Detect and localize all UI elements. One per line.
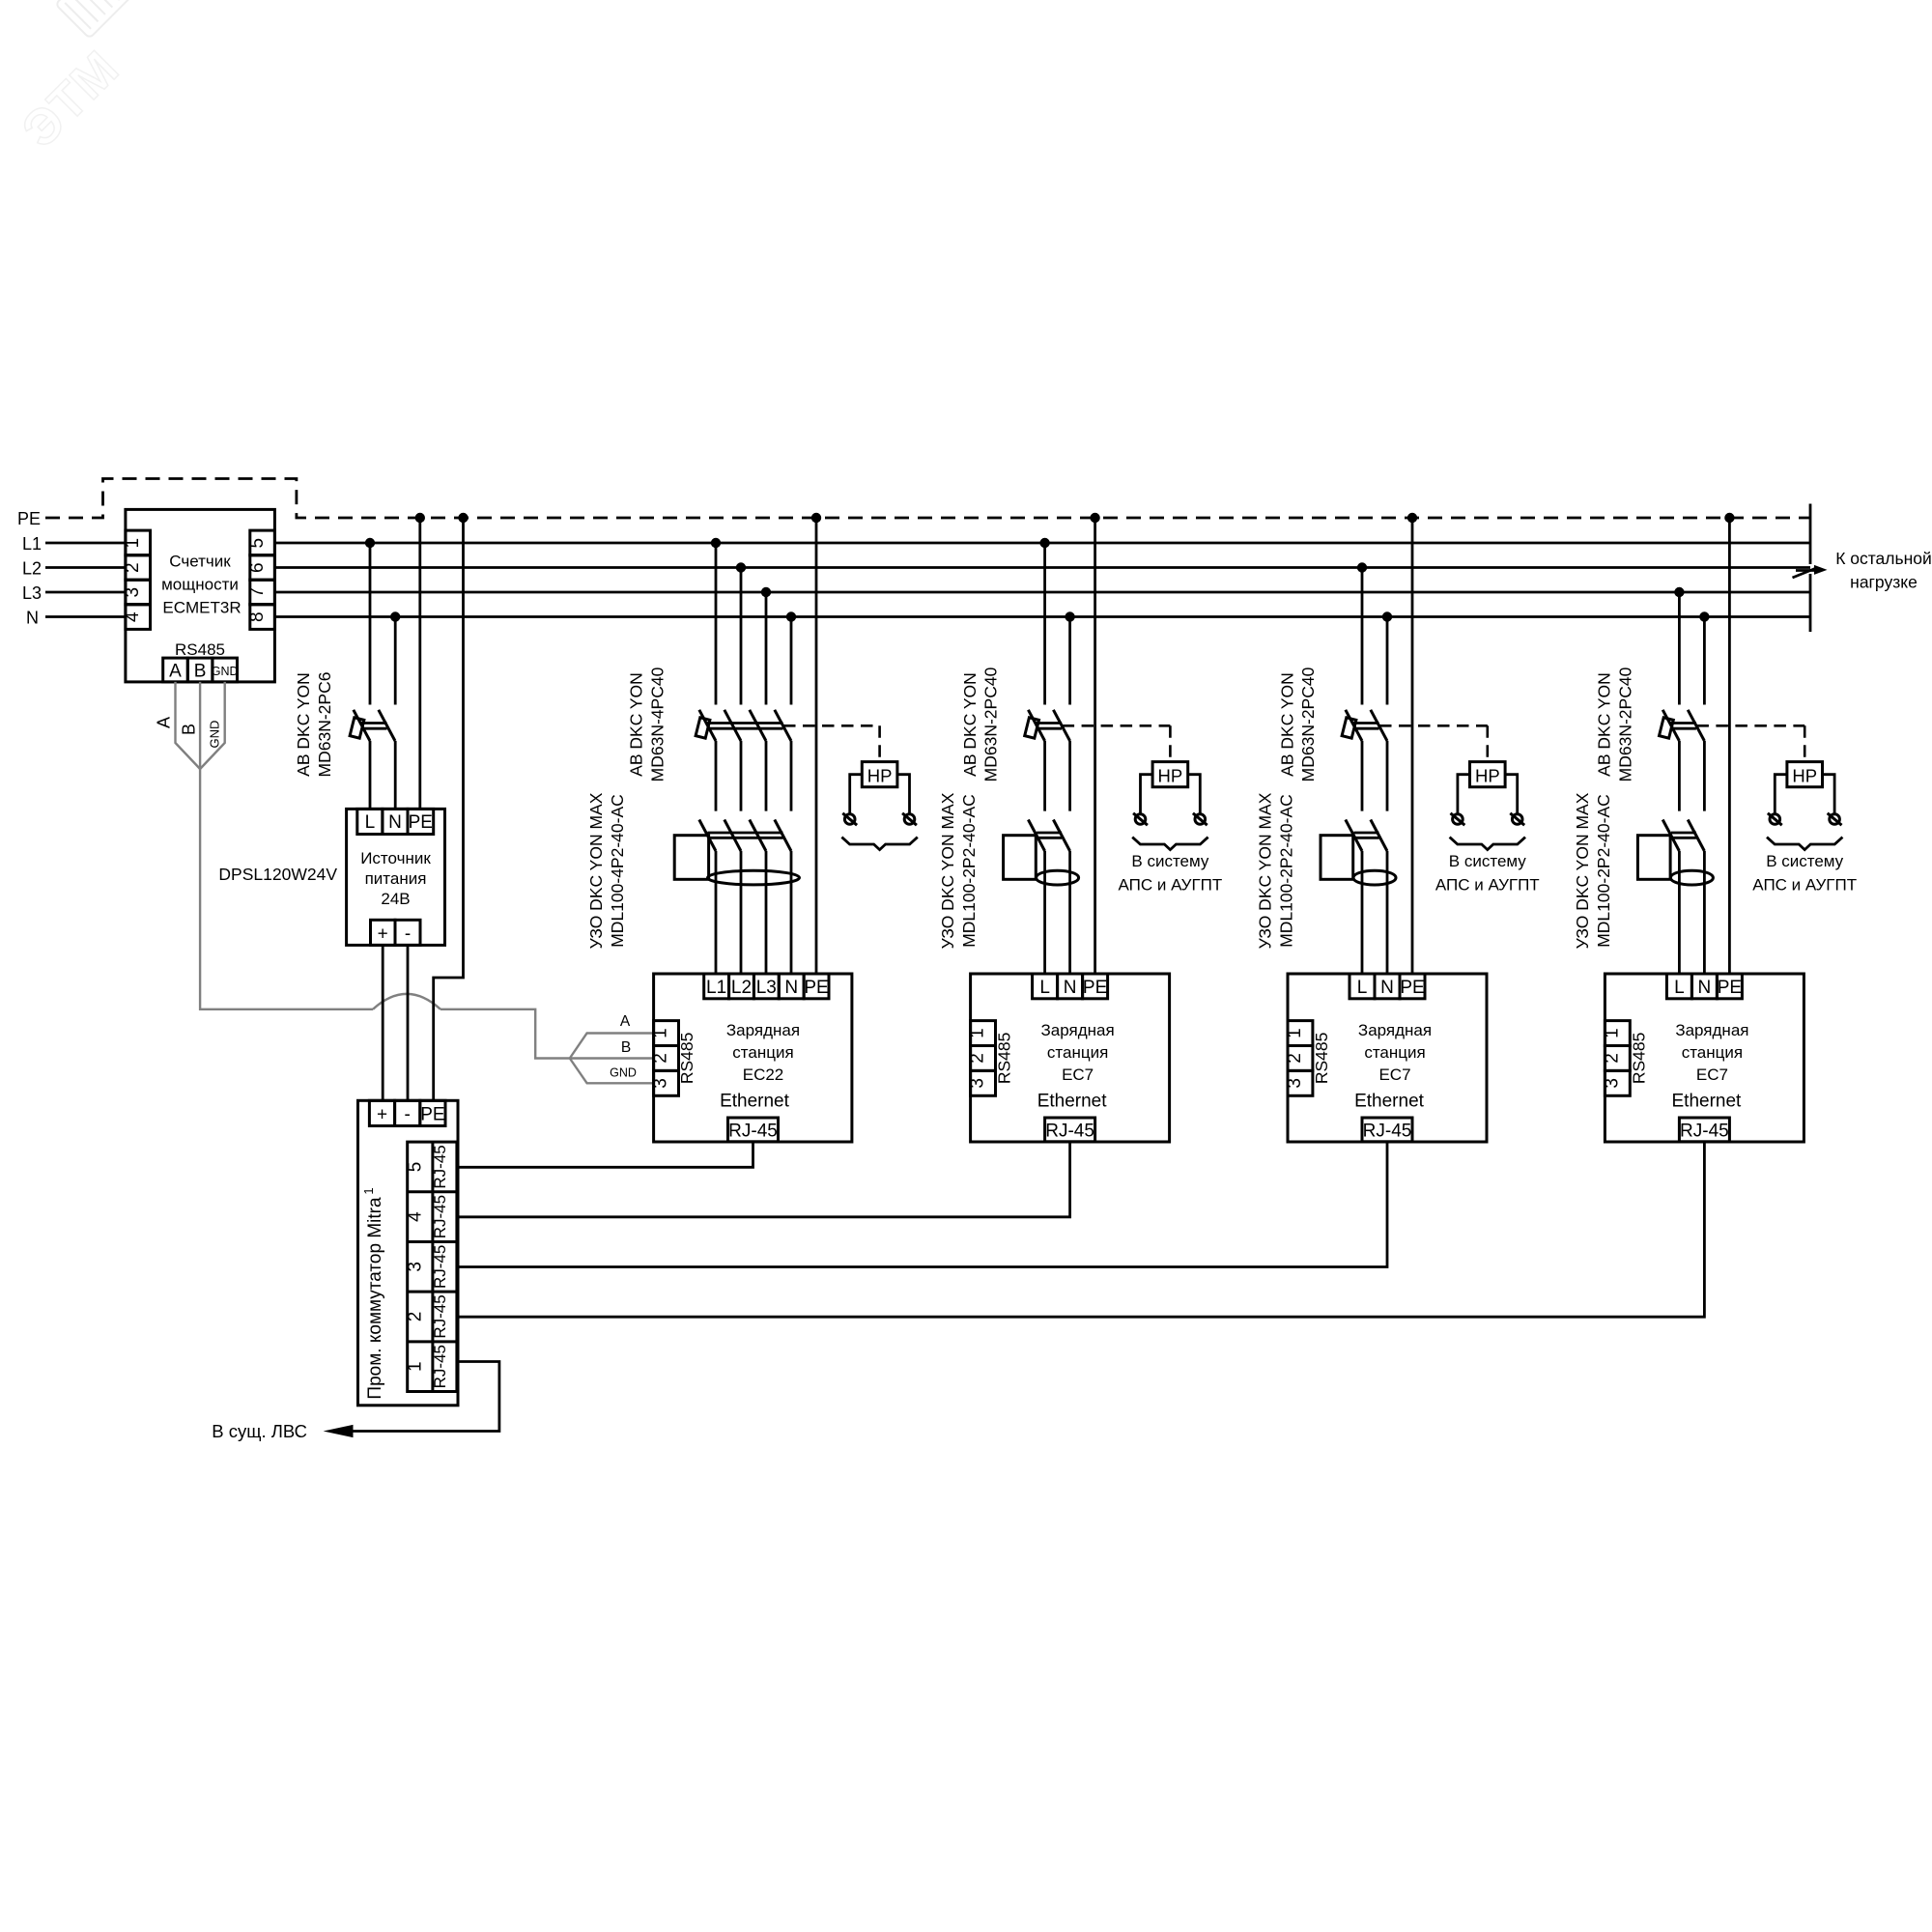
svg-text:5: 5 [247,538,268,549]
svg-text:L1: L1 [706,978,726,998]
svg-text:Пром. коммутатор Mitra: Пром. коммутатор Mitra [365,1197,385,1400]
svg-text:1: 1 [123,538,143,549]
svg-text:АВ DKC YON: АВ DKC YON [1595,672,1614,777]
svg-text:B: B [194,662,207,682]
svg-text:GND: GND [212,665,239,678]
svg-text:УЗО DKC YON MAX: УЗО DKC YON MAX [1256,792,1275,949]
svg-text:L1: L1 [22,534,42,554]
svg-text:PE: PE [409,812,433,833]
svg-text:A: A [169,662,182,682]
svg-text:К остальной: К остальной [1835,549,1932,568]
svg-text:+: + [378,924,388,945]
svg-text:6: 6 [247,562,268,573]
svg-text:-: - [405,924,411,945]
svg-text:В систему: В систему [1131,852,1208,870]
svg-text:MDL100-2P2-40-AC: MDL100-2P2-40-AC [1276,794,1295,948]
svg-text:АВ DKC YON: АВ DKC YON [627,672,646,777]
svg-text:УЗО DKC YON MAX: УЗО DKC YON MAX [1573,792,1592,949]
svg-text:АВ DKC YON: АВ DKC YON [294,672,313,777]
svg-text:MD63N-2PC40: MD63N-2PC40 [981,667,1001,781]
svg-text:1: 1 [651,1028,671,1038]
svg-text:3: 3 [651,1078,671,1089]
svg-text:нагрузке: нагрузке [1850,573,1918,592]
svg-text:2: 2 [651,1053,671,1064]
svg-text:N: N [26,609,39,628]
svg-text:L3: L3 [22,583,42,603]
svg-text:2: 2 [123,562,143,573]
svg-text:GND: GND [610,1066,637,1080]
svg-text:УЗО DKC YON MAX: УЗО DKC YON MAX [938,792,957,949]
svg-text:АПС и АУГПТ: АПС и АУГПТ [1119,876,1223,895]
svg-text:-: - [405,1105,411,1125]
svg-text:АПС и АУГПТ: АПС и АУГПТ [1435,876,1540,895]
svg-text:Источник: Источник [360,849,431,867]
svg-text:4: 4 [405,1211,425,1222]
svg-text:питания: питания [365,869,427,888]
svg-text:PE: PE [804,978,828,998]
svg-text:мощности: мощности [161,576,239,594]
svg-text:L: L [365,812,376,833]
svg-text:RS485: RS485 [677,1033,696,1085]
svg-text:L3: L3 [756,978,777,998]
svg-text:А: А [155,717,174,728]
svg-text:1: 1 [361,1187,376,1194]
svg-text:В сущ. ЛВС: В сущ. ЛВС [212,1421,307,1441]
svg-text:24В: 24В [381,890,410,908]
svg-text:1: 1 [405,1361,425,1372]
svg-text:MDL100-2P2-40-AC: MDL100-2P2-40-AC [1594,794,1613,948]
svg-text:MDL100-4P2-40-AC: MDL100-4P2-40-AC [608,794,627,948]
svg-text:PE: PE [17,509,41,528]
svg-text:RJ-45: RJ-45 [728,1122,778,1142]
svg-text:MD63N-2PC40: MD63N-2PC40 [1615,667,1634,781]
svg-text:7: 7 [247,587,268,598]
svg-text:RJ-45: RJ-45 [431,1245,449,1289]
svg-text:RJ-45: RJ-45 [431,1294,449,1338]
svg-text:N: N [388,812,402,833]
svg-text:3: 3 [405,1262,425,1272]
svg-text:GND: GND [208,721,222,749]
svg-text:А: А [620,1013,631,1030]
svg-text:8: 8 [247,611,268,622]
svg-text:MD63N-2PC6: MD63N-2PC6 [315,672,334,778]
svg-text:3: 3 [123,587,143,598]
svg-text:MD63N-4PC40: MD63N-4PC40 [647,667,667,781]
svg-text:RJ-45: RJ-45 [431,1195,449,1238]
svg-text:EC22: EC22 [743,1065,784,1084]
svg-text:АВ DKC YON: АВ DKC YON [1277,672,1296,777]
svg-text:L2: L2 [731,978,752,998]
svg-text:В систему: В систему [1449,852,1526,870]
svg-text:УЗО DKC YON MAX: УЗО DKC YON MAX [586,792,606,949]
svg-text:станция: станция [732,1043,793,1062]
svg-text:Счетчик: Счетчик [169,553,231,571]
svg-text:PE: PE [420,1105,444,1125]
svg-text:RS485: RS485 [175,640,225,659]
svg-text:ECMET3R: ECMET3R [162,599,241,617]
svg-text:Зарядная: Зарядная [726,1021,800,1039]
svg-text:RJ-45: RJ-45 [431,1345,449,1388]
svg-text:MD63N-2PC40: MD63N-2PC40 [1298,667,1318,781]
svg-text:MDL100-2P2-40-AC: MDL100-2P2-40-AC [959,794,979,948]
svg-text:В: В [621,1039,631,1056]
svg-text:2: 2 [405,1312,425,1322]
svg-text:4: 4 [123,611,143,622]
svg-text:DPSL120W24V: DPSL120W24V [218,865,337,884]
svg-text:АПС и АУГПТ: АПС и АУГПТ [1752,876,1857,895]
svg-text:5: 5 [405,1162,425,1173]
svg-text:L2: L2 [22,559,42,579]
svg-text:RJ-45: RJ-45 [431,1145,449,1188]
svg-text:+: + [377,1105,387,1125]
svg-text:В систему: В систему [1766,852,1843,870]
svg-text:В: В [179,724,198,735]
svg-text:АВ DKC YON: АВ DKC YON [960,672,980,777]
svg-text:Ethernet: Ethernet [720,1092,790,1112]
svg-text:N: N [784,978,798,998]
